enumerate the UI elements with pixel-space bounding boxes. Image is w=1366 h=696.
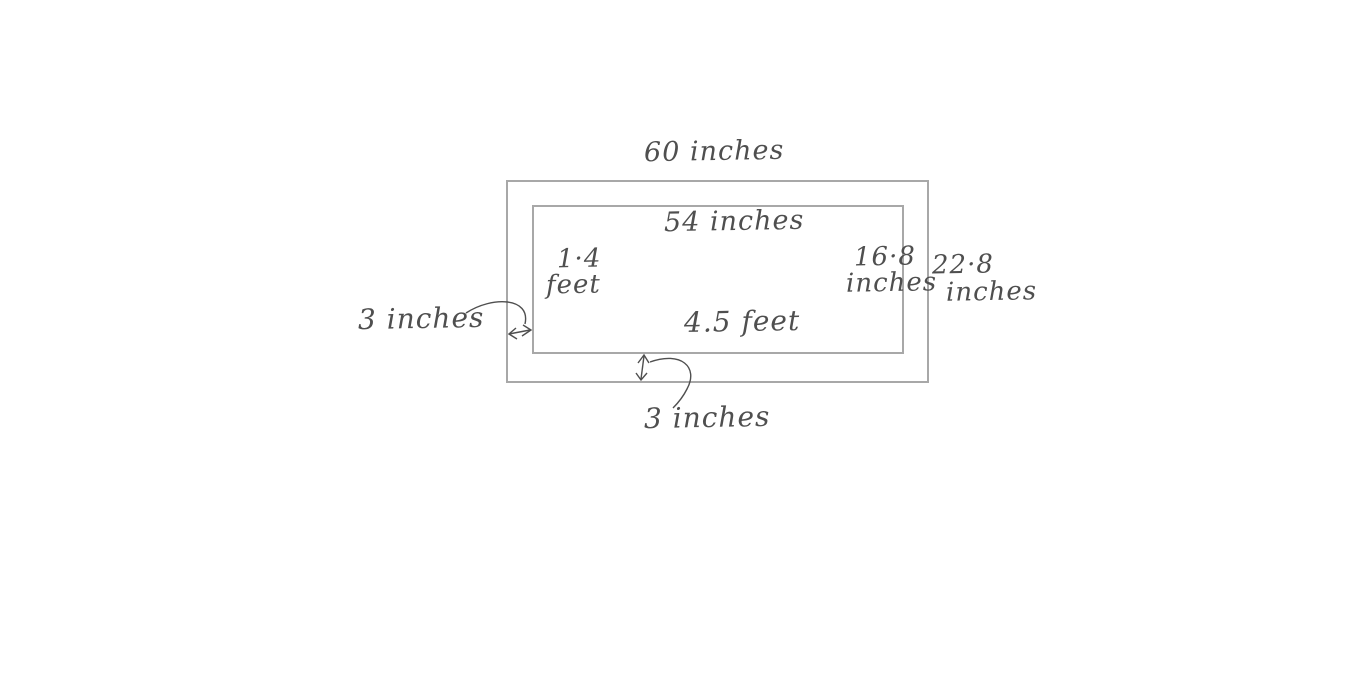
label-outer-height-right-value: 22·8	[932, 251, 994, 278]
label-bottom-margin: 3 inches	[644, 403, 771, 433]
diagram-drawing	[0, 0, 1366, 696]
label-inner-height-right-value: 16·8	[854, 243, 916, 270]
label-inner-width-bottom: 4.5 feet	[684, 307, 801, 337]
label-inner-height-left-value: 1·4	[557, 246, 602, 273]
label-inner-width-top: 54 inches	[664, 207, 805, 236]
label-outer-height-right-unit: inches	[946, 278, 1038, 306]
label-inner-height-left-unit: feet	[546, 272, 601, 299]
label-outer-width-top: 60 inches	[644, 137, 785, 166]
diagram-canvas: 60 inches 54 inches 1·4 feet 16·8 inches…	[0, 0, 1366, 696]
label-inner-height-right-unit: inches	[846, 269, 938, 297]
label-left-margin: 3 inches	[358, 304, 485, 334]
